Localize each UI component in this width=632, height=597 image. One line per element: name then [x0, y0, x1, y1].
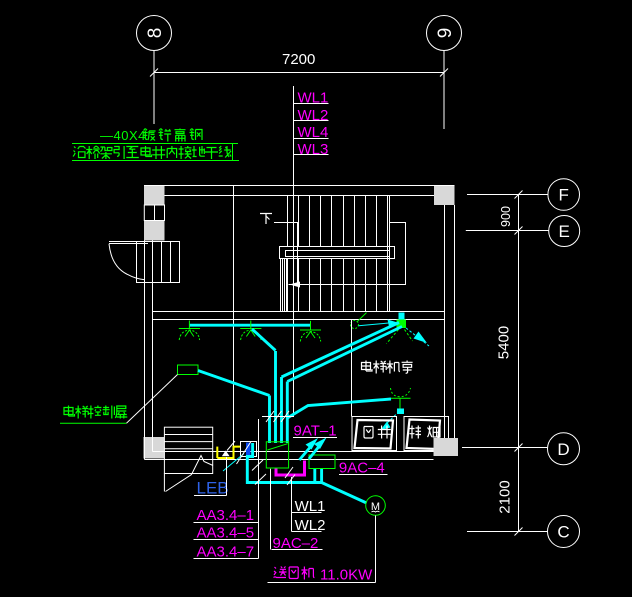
- svg-text:—40X4: —40X4: [100, 128, 146, 143]
- svg-text:11.0KW: 11.0KW: [320, 567, 373, 584]
- svg-text:WL3: WL3: [298, 141, 329, 158]
- svg-text:E: E: [559, 222, 570, 241]
- svg-text:F: F: [559, 186, 569, 205]
- svg-text:9AT–1: 9AT–1: [294, 423, 337, 440]
- svg-text:AA3.4–7: AA3.4–7: [197, 544, 255, 561]
- svg-text:WL2: WL2: [298, 107, 329, 124]
- svg-text:C: C: [557, 523, 569, 542]
- svg-text:AA3.4–1: AA3.4–1: [197, 507, 255, 524]
- svg-text:9AC–4: 9AC–4: [339, 460, 385, 477]
- svg-text:8: 8: [145, 28, 166, 39]
- svg-text:AA3.4–5: AA3.4–5: [197, 525, 255, 542]
- svg-text:7200: 7200: [282, 51, 315, 68]
- svg-text:2100: 2100: [497, 480, 514, 513]
- svg-text:9: 9: [435, 28, 456, 39]
- svg-text:LEB: LEB: [197, 479, 229, 498]
- svg-text:5400: 5400: [496, 326, 513, 359]
- svg-text:900: 900: [499, 206, 513, 227]
- svg-text:D: D: [557, 440, 569, 459]
